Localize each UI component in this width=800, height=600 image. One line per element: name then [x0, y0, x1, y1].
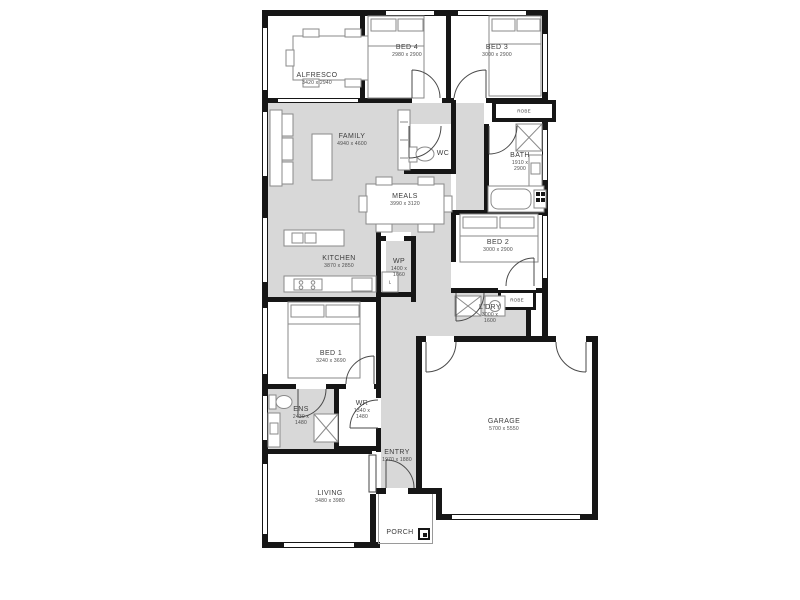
room-label-wp: WP1400 x 1660	[387, 258, 411, 278]
plan-geometry	[292, 233, 303, 243]
plan-geometry	[491, 189, 531, 209]
room-name: ROBE	[510, 297, 524, 302]
plan-geometry	[312, 134, 332, 180]
plan-geometry	[345, 79, 361, 87]
room-label-garage: GARAGE5700 x 5550	[488, 418, 520, 432]
room-label-linen: L	[389, 279, 392, 284]
plan-geometry	[454, 70, 486, 98]
plan-geometry	[398, 19, 423, 31]
room-dims: 3480 x 3980	[315, 498, 345, 504]
room-name: GARAGE	[488, 418, 520, 426]
plan-geometry	[303, 29, 319, 37]
plan-geometry	[376, 177, 392, 185]
room-label-bed3: BED 33000 x 2900	[482, 44, 512, 58]
room-dims: 4940 x 4600	[337, 141, 367, 147]
room-name: ALFRESCO	[297, 72, 338, 80]
plan-geometry	[282, 162, 293, 184]
room-label-kitchen: KITCHEN3870 x 2850	[322, 255, 356, 269]
room-dims: 3420 x 2940	[297, 80, 338, 86]
plan-geometry	[294, 279, 322, 290]
plan-geometry	[517, 19, 540, 31]
plan-geometry	[531, 163, 540, 174]
plan-geometry	[386, 460, 414, 488]
room-label-bed4: BED 42980 x 2900	[392, 44, 422, 58]
room-label-living: LIVING3480 x 3980	[315, 490, 345, 504]
room-label-ens: ENS2430 x 1480	[289, 406, 313, 426]
room-name: FAMILY	[337, 133, 367, 141]
room-label-porch: PORCH	[386, 529, 413, 537]
room-dims: 1400 x 1660	[387, 266, 411, 278]
cavity-slider-icon	[369, 455, 376, 492]
room-dims: 1340 x 1480	[350, 408, 374, 420]
floorplan: document.currentScript.previousElementSi…	[0, 0, 800, 600]
room-name: BED 3	[482, 44, 512, 52]
room-label-meals: MEALS3990 x 3120	[390, 193, 420, 207]
plan-geometry	[305, 233, 316, 243]
room-label-robe2: ROBE	[510, 297, 524, 302]
plan-geometry	[541, 192, 545, 196]
room-label-wc: WC	[437, 150, 449, 158]
room-dims: 1910 x 2900	[508, 160, 532, 172]
room-name: BED 1	[316, 350, 346, 358]
furniture-layer	[0, 0, 800, 600]
plan-geometry	[492, 19, 515, 31]
plan-geometry	[426, 342, 456, 372]
plan-geometry	[536, 192, 540, 196]
room-label-wr: WR1340 x 1480	[350, 400, 374, 420]
room-label-alfresco: ALFRESCO3420 x 2940	[297, 72, 338, 86]
room-name: KITCHEN	[322, 255, 356, 263]
room-label-bed2: BED 23000 x 2900	[483, 239, 513, 253]
room-name: PORCH	[386, 529, 413, 537]
family-sofa-icon	[270, 110, 410, 186]
plan-geometry	[556, 342, 586, 372]
plan-geometry	[270, 423, 278, 434]
room-dims: 3990 x 3120	[390, 201, 420, 207]
plan-geometry	[418, 224, 434, 232]
plan-geometry	[345, 29, 361, 37]
plan-geometry	[500, 217, 534, 228]
plan-geometry	[282, 114, 293, 136]
room-label-family: FAMILY4940 x 4600	[337, 133, 367, 147]
plan-geometry	[282, 138, 293, 160]
room-name: WC	[437, 150, 449, 158]
room-label-ldry: L'DRY3000 x 1600	[478, 304, 502, 324]
plan-geometry	[359, 196, 367, 212]
room-dims: 3240 x 3690	[316, 358, 346, 364]
plan-geometry	[444, 196, 452, 212]
room-dims: 3000 x 2900	[483, 247, 513, 253]
room-name: ENS	[289, 406, 313, 414]
room-name: WP	[387, 258, 411, 266]
room-name: BATH	[508, 152, 532, 160]
room-dims: 5700 x 5550	[488, 426, 520, 432]
plan-geometry	[299, 281, 303, 285]
room-dims: 3000 x 2900	[482, 52, 512, 58]
plan-geometry	[369, 455, 376, 492]
room-label-entry: ENTRY1970 x 1880	[382, 449, 412, 463]
room-dims: 2430 x 1480	[289, 414, 313, 426]
room-label-robe1: ROBE	[517, 108, 531, 113]
room-dims: 3870 x 2850	[322, 263, 356, 269]
plan-geometry	[463, 217, 497, 228]
plan-geometry	[286, 50, 294, 66]
room-name: WR	[350, 400, 374, 408]
plan-geometry	[270, 110, 282, 186]
room-name: ROBE	[517, 108, 531, 113]
room-name: MEALS	[390, 193, 420, 201]
plan-geometry	[371, 19, 396, 31]
plan-geometry	[291, 305, 324, 317]
plan-geometry	[326, 305, 359, 317]
plan-geometry	[311, 286, 315, 290]
plan-geometry	[376, 224, 392, 232]
plan-geometry	[299, 286, 303, 290]
room-name: L	[389, 279, 392, 284]
plan-geometry	[352, 278, 372, 291]
room-dims: 3000 x 1600	[478, 312, 502, 324]
plan-geometry	[489, 126, 517, 154]
room-label-bed1: BED 13240 x 3690	[316, 350, 346, 364]
room-dims: 1970 x 1880	[382, 457, 412, 463]
plan-geometry	[541, 198, 545, 202]
room-name: BED 2	[483, 239, 513, 247]
room-name: LIVING	[315, 490, 345, 498]
bed1-bed-icon	[288, 302, 360, 378]
plan-geometry	[269, 395, 276, 409]
room-dims: 2980 x 2900	[392, 52, 422, 58]
room-name: BED 4	[392, 44, 422, 52]
room-label-bath: BATH1910 x 2900	[508, 152, 532, 172]
room-name: L'DRY	[478, 304, 502, 312]
floorplan-page: document.currentScript.previousElementSi…	[0, 0, 800, 600]
wc-toilet-icon	[409, 147, 434, 162]
plan-geometry	[418, 177, 434, 185]
room-name: ENTRY	[382, 449, 412, 457]
plan-geometry	[311, 281, 315, 285]
plan-geometry	[536, 198, 540, 202]
